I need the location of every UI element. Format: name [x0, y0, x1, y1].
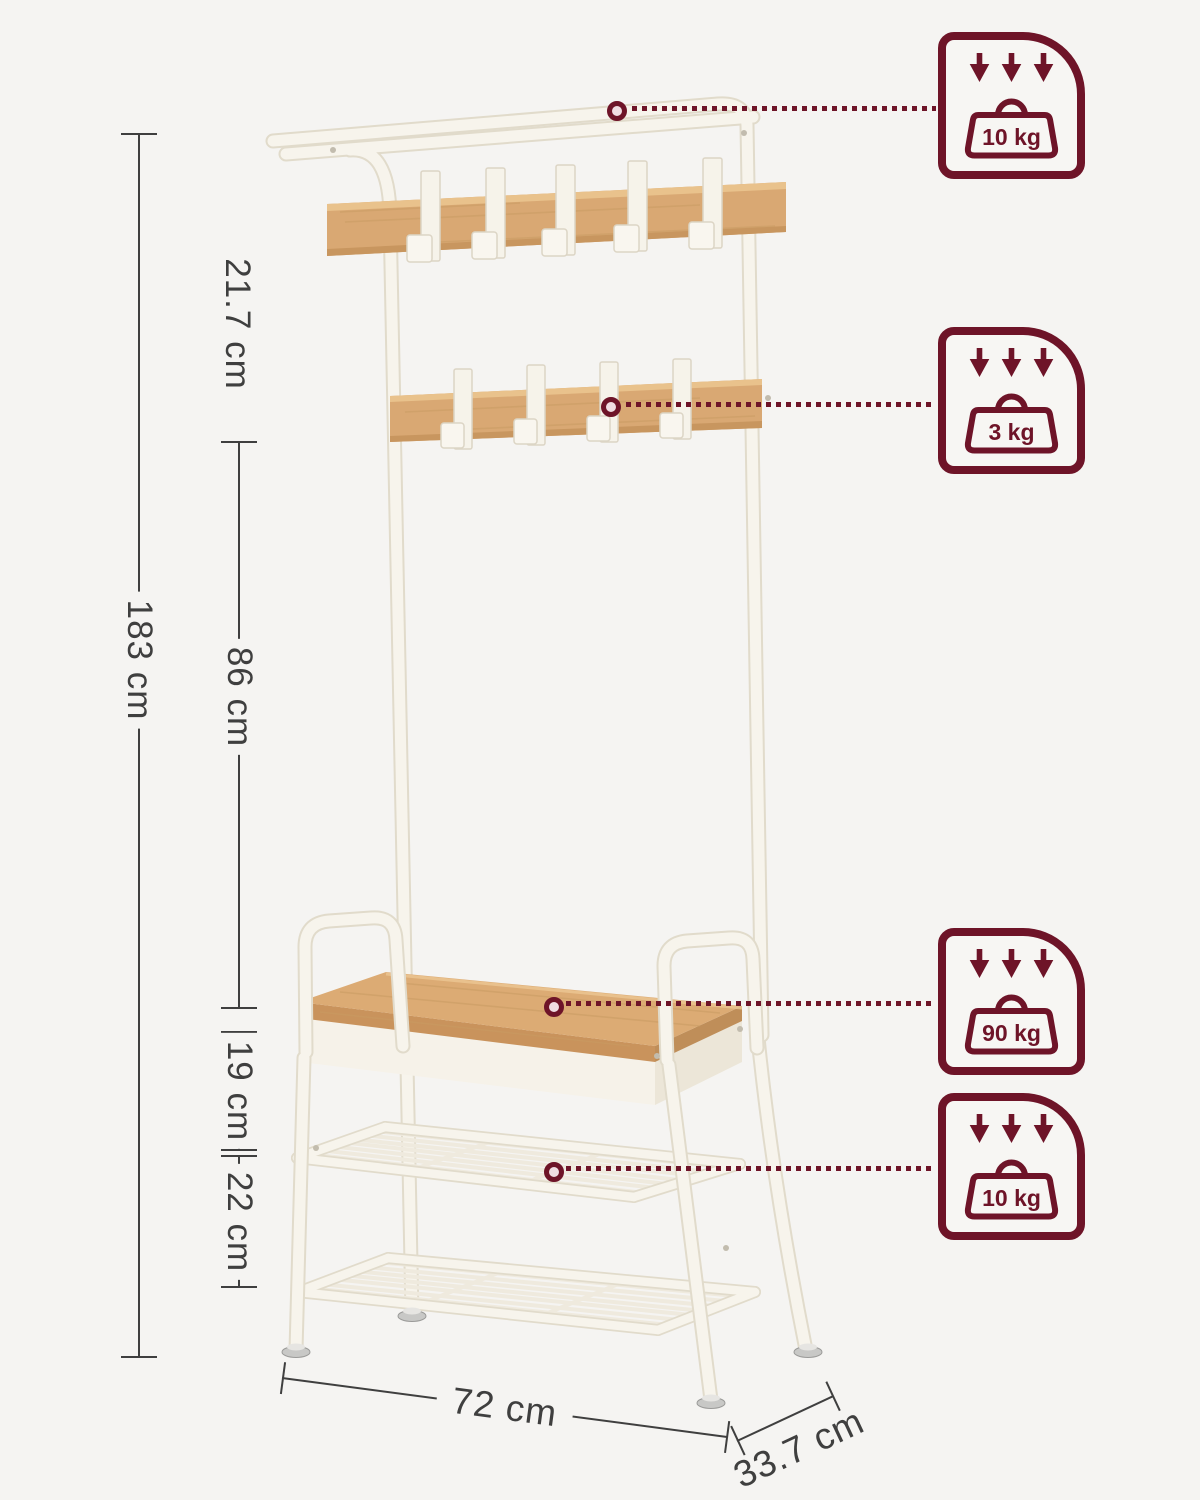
wire-shelf-lower	[298, 1258, 755, 1330]
weight-icon: 3 kg	[968, 397, 1055, 451]
arrows-down-icon	[970, 348, 1054, 377]
capacity-badge-bench-seat: 90 kg	[938, 928, 1085, 1075]
dimension-rail-to-bench-label: 86 cm	[218, 639, 260, 755]
marker-dot-hook-rail	[601, 397, 621, 417]
load-capacity-icon: 10 kg	[946, 1101, 1077, 1232]
connector-bench-seat	[566, 1001, 936, 1006]
marker-dot-wire-shelf	[544, 1162, 564, 1182]
capacity-value: 10 kg	[982, 124, 1041, 150]
dimension-shelf-spacing: 22 cm	[221, 1156, 257, 1287]
dimension-shelf-spacing-label: 22 cm	[218, 1163, 260, 1279]
load-capacity-icon: 10 kg	[946, 40, 1077, 171]
capacity-value: 10 kg	[982, 1185, 1041, 1211]
weight-icon: 10 kg	[968, 102, 1055, 156]
capacity-value: 90 kg	[982, 1020, 1041, 1046]
capacity-badge-hook-rail: 3 kg	[938, 327, 1085, 474]
capacity-badge-wire-shelf: 10 kg	[938, 1093, 1085, 1240]
arrows-down-icon	[970, 1114, 1054, 1143]
connector-hook-rail	[626, 402, 936, 407]
dimension-rail-to-bench: 86 cm	[221, 442, 257, 1008]
product-illustration	[0, 0, 1200, 1500]
dimension-total-height: 183 cm	[121, 134, 157, 1357]
load-capacity-icon: 3 kg	[946, 335, 1077, 466]
capacity-badge-top-shelf: 10 kg	[938, 32, 1085, 179]
capacity-value: 3 kg	[988, 419, 1034, 445]
connector-wire-shelf	[566, 1166, 936, 1171]
arrows-down-icon	[970, 53, 1054, 82]
dimension-hook-rail-spacing-label: 21.7 cm	[216, 250, 258, 398]
load-capacity-icon: 90 kg	[946, 936, 1077, 1067]
dimension-bench-to-shelf: 19 cm	[221, 1032, 257, 1150]
product-dimension-diagram: 183 cm 21.7 cm 86 cm 19 cm 22 cm 72 cm 3…	[0, 0, 1200, 1500]
marker-dot-bench-seat	[544, 997, 564, 1017]
connector-top-shelf	[632, 106, 936, 111]
weight-icon: 90 kg	[968, 998, 1055, 1052]
weight-icon: 10 kg	[968, 1163, 1055, 1217]
arrows-down-icon	[970, 949, 1054, 978]
dimension-total-height-label: 183 cm	[118, 591, 160, 728]
marker-dot-top-shelf	[607, 101, 627, 121]
dimension-bench-to-shelf-label: 19 cm	[218, 1033, 260, 1149]
dimension-hook-rail-spacing: 21.7 cm	[219, 253, 255, 395]
